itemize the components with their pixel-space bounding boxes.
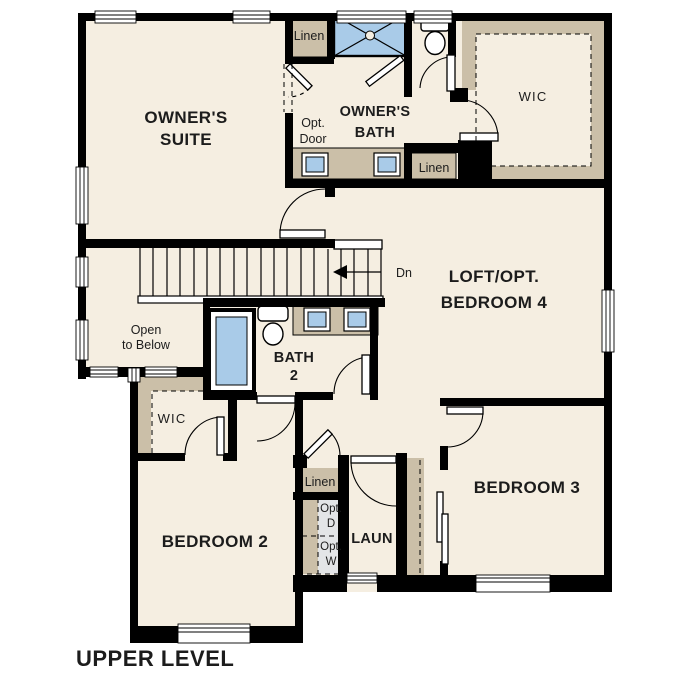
window [90,367,118,377]
window [128,368,140,382]
shower-drain [366,31,375,40]
bath2-label-1: BATH [274,350,314,366]
bedroom2-door [257,396,295,403]
laundry-label: LAUN [351,531,392,547]
wic2-door [217,417,224,455]
bath2-door [362,355,370,394]
window [95,11,136,23]
owners-bath-label-1: OWNER'S [340,104,411,120]
opt-washer-label-2: W [326,556,337,568]
window [178,624,250,643]
wic-top-label: WIC [519,89,548,104]
window [476,575,550,592]
bath2-toilet-bowl [263,323,283,345]
owners-suite-label-1: OWNER'S [144,108,227,127]
bedroom3-label: BEDROOM 3 [474,478,581,497]
wic2-shelf-west [137,391,151,453]
window [414,11,452,23]
open-below-label-2: to Below [122,338,171,352]
toilet-room-door [447,55,455,91]
window [76,257,88,287]
bathtub-basin [216,317,247,385]
bedroom3-closet-shelf [406,458,424,575]
stair-dn-label: Dn [396,266,412,280]
stair-landing [334,240,382,249]
wic-shelf-east [591,21,605,180]
open-below-label-1: Open [131,323,162,337]
window [76,167,88,224]
window [145,367,177,377]
owners-sink-1-basin [306,157,324,172]
bath2-sink-1-basin [308,312,326,327]
wic2-label: WIC [158,411,187,426]
wic-shelf-south [490,166,591,180]
floor-plan: OWNER'S SUITE OWNER'S BATH Linen Opt. Do… [0,0,687,687]
bath2-label-2: 2 [290,368,298,384]
bedroom2-label: BEDROOM 2 [162,532,269,551]
window [76,320,88,360]
opt-dryer-label-1: Opt. [320,503,342,515]
wic-shelf-west [462,21,476,90]
bedroom3-door [447,407,483,414]
owners-suite-label-2: SUITE [160,130,212,149]
wic-shelf-north [462,21,605,34]
wic-door [460,133,498,141]
laundry-door [351,456,396,463]
owners-sink-2-basin [378,157,396,172]
window [602,290,614,352]
window [233,11,270,23]
linen-top-label: Linen [294,29,325,43]
window [347,573,377,583]
window [337,11,406,23]
opt-door-label-2: Door [299,132,326,146]
opt-dryer-label-2: D [327,518,335,530]
floor-plan-drawing: OWNER'S SUITE OWNER'S BATH Linen Opt. Do… [0,0,687,687]
bath2-toilet-tank [258,306,288,321]
loft-label-2: BEDROOM 4 [441,293,548,312]
linen-hall-label: Linen [305,475,336,489]
page-title: UPPER LEVEL [76,646,234,671]
owners-suite-door [280,230,325,238]
linen-bath-label: Linen [419,161,450,175]
loft-label-1: LOFT/OPT. [449,267,539,286]
opt-door-label-1: Opt. [301,116,325,130]
owners-toilet-bowl [425,32,445,55]
bath2-sink-2-basin [348,312,366,327]
bedroom3-closet-bypass-door-2 [442,514,448,564]
opt-washer-label-1: Opt. [320,541,342,553]
owners-bath-label-2: BATH [355,125,395,141]
